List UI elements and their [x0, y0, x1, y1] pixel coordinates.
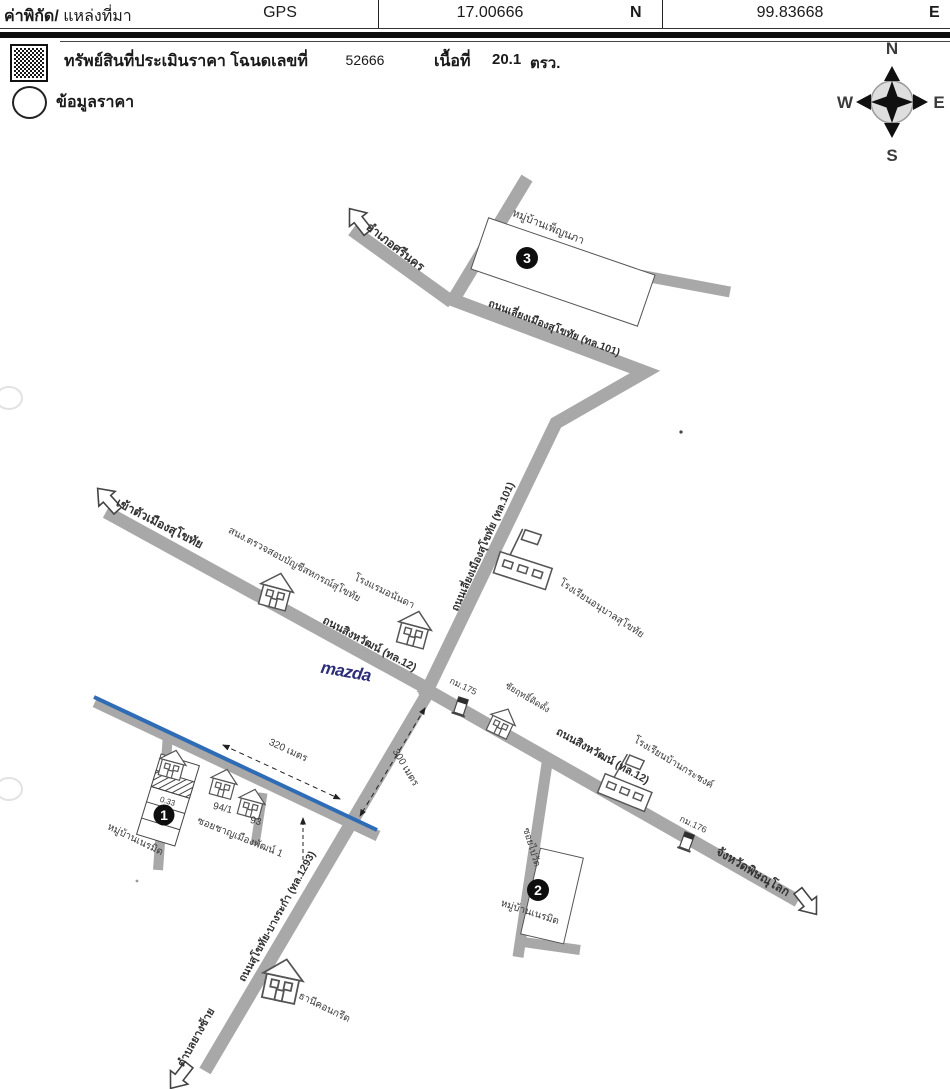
header-rule-thin2	[60, 41, 950, 42]
map-speck	[679, 430, 682, 433]
area-label: เนื้อที่	[434, 49, 471, 74]
marker-1-number: 1	[160, 807, 168, 823]
compass-e: E	[933, 93, 944, 112]
road-soi-subject	[95, 702, 378, 836]
road-sukhothai-bangrakam	[205, 691, 429, 1071]
appraisal-map-page: ค่าพิกัด/ แหล่งที่มา GPS 17.00666 N 99.8…	[0, 0, 950, 1089]
area-value: 20.1	[492, 51, 521, 68]
hotel-house-icon	[394, 607, 436, 650]
road-si-nakhon	[352, 230, 452, 302]
label-thani-concrete: ธานีคอนกรีต	[297, 990, 353, 1025]
price-data-label: ข้อมูลราคา	[56, 90, 134, 115]
road-network	[95, 178, 798, 1071]
map-speck	[136, 880, 139, 883]
longitude-direction: E	[929, 4, 940, 22]
marker-2-number: 2	[534, 882, 542, 898]
compass-w: W	[837, 93, 854, 112]
header-rule-thick	[0, 32, 950, 38]
subject-property-swatch	[10, 44, 48, 82]
mazda-logo: mazda	[319, 658, 372, 685]
deed-number: 52666	[330, 52, 400, 68]
compass-arrow-east-icon	[913, 94, 928, 110]
price-data-circle-icon	[12, 86, 47, 119]
marker-3-number: 3	[523, 250, 531, 266]
marker-2: 2	[527, 879, 549, 901]
label-300m: 300 เมตร	[390, 747, 421, 789]
label-bypass-lower: ถนนเลี่ยงเมืองสุโขทัย (ทล.101)	[447, 479, 519, 613]
label-house-94-1: 94/1	[212, 801, 234, 816]
compass-arrow-west-icon	[856, 94, 871, 110]
longitude-value: 99.83668	[690, 4, 890, 22]
punch-hole	[0, 387, 22, 409]
area-unit: ตรว.	[530, 51, 560, 75]
header-divider-1	[378, 0, 379, 28]
location-map: 0.33 3 1 2 อำเภอศรีนคร	[0, 140, 950, 1089]
label-soi-chan: ซอยชาญเมืองพัฒน์ 1	[196, 815, 286, 860]
label-chaiyarit: ชัยฤทธิ์ติดตั้ง	[503, 679, 552, 715]
label-km175: กม.175	[448, 676, 478, 697]
coord-label: ค่าพิกัด/ แหล่งที่มา	[4, 4, 132, 29]
label-anuban-school: โรงเรียนอนุบาลสุโขทัย	[557, 576, 647, 641]
compass-arrow-south-icon	[884, 123, 900, 138]
highlighted-road-blue	[94, 697, 377, 830]
latitude-value: 17.00666	[390, 4, 590, 22]
property-label: ทรัพย์สินที่ประเมินราคา โฉนดเลขที่	[64, 49, 308, 74]
source-label: แหล่งที่มา	[63, 8, 132, 25]
header-divider-2	[662, 0, 663, 28]
coord-label-bold: ค่าพิกัด/	[4, 8, 59, 25]
marker-1: 1	[154, 805, 175, 826]
gps-source-value: GPS	[200, 4, 360, 22]
compass-arrow-north-icon	[884, 66, 900, 81]
compass-n: N	[886, 39, 898, 58]
road-soi-pai-wat-stub	[516, 941, 580, 950]
road-bypass-main	[424, 298, 645, 697]
header-rule-thin	[0, 28, 950, 29]
checker-pattern	[14, 48, 44, 78]
label-320m: 320 เมตร	[267, 737, 310, 765]
latitude-direction: N	[630, 4, 642, 22]
label-phitsanulok: จังหวัดพิษณุโลก	[713, 843, 793, 900]
punch-hole	[0, 778, 22, 800]
label-ananda-hotel: โรงแรมอนันดา	[352, 571, 417, 612]
audit-office-house-icon	[256, 569, 298, 612]
marker-3: 3	[516, 247, 538, 269]
